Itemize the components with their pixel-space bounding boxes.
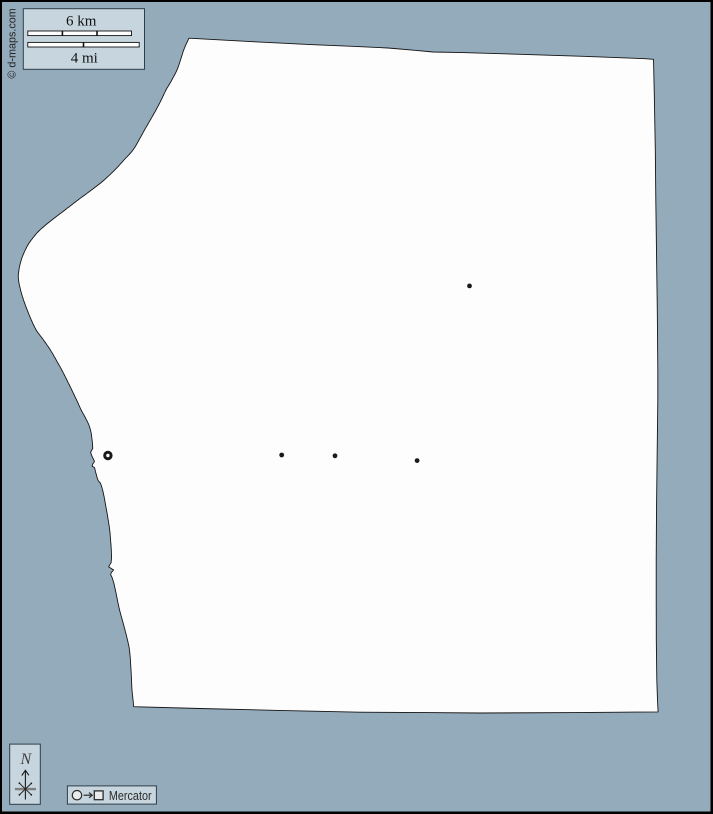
svg-text:© d-maps.com: © d-maps.com bbox=[7, 8, 19, 78]
svg-text:N: N bbox=[19, 751, 32, 768]
svg-text:6 km: 6 km bbox=[66, 14, 97, 30]
svg-text:Mercator: Mercator bbox=[109, 788, 152, 803]
svg-text:4 mi: 4 mi bbox=[71, 51, 98, 67]
